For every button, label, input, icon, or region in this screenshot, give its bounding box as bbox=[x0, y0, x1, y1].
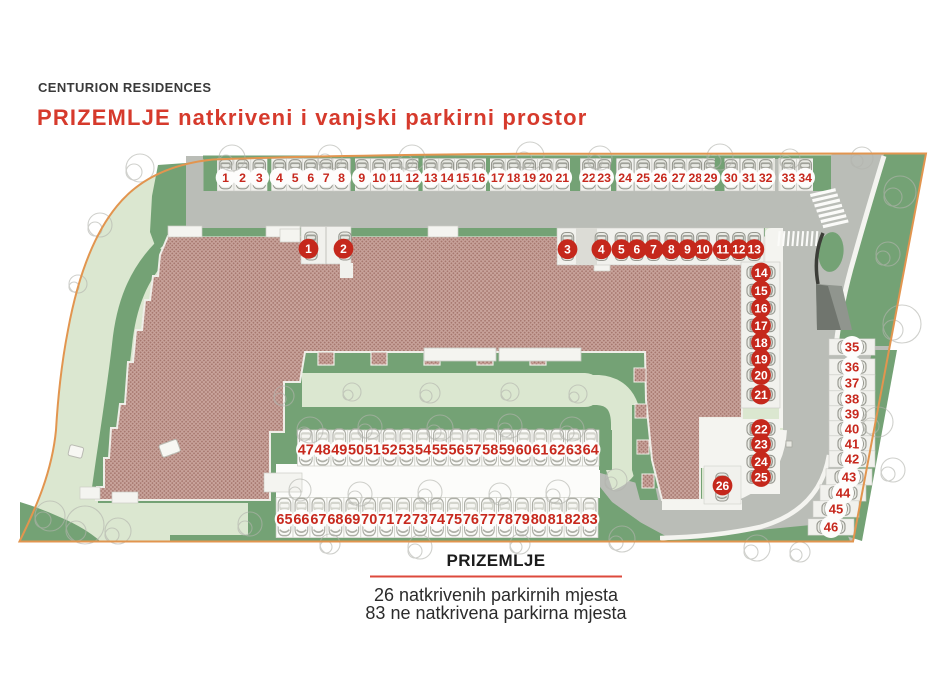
svg-text:17: 17 bbox=[491, 171, 505, 185]
svg-text:19: 19 bbox=[754, 352, 768, 366]
svg-text:46: 46 bbox=[824, 520, 838, 535]
svg-text:4: 4 bbox=[276, 171, 283, 185]
svg-text:2: 2 bbox=[340, 242, 347, 256]
svg-text:20: 20 bbox=[754, 368, 768, 382]
svg-text:74: 74 bbox=[429, 512, 445, 528]
svg-text:2: 2 bbox=[239, 171, 246, 185]
svg-text:81: 81 bbox=[548, 512, 564, 528]
svg-text:50: 50 bbox=[348, 443, 364, 459]
svg-text:10: 10 bbox=[696, 243, 710, 257]
svg-text:25: 25 bbox=[636, 171, 650, 185]
svg-text:64: 64 bbox=[583, 443, 599, 459]
svg-text:15: 15 bbox=[456, 171, 470, 185]
svg-text:6: 6 bbox=[307, 171, 314, 185]
svg-text:22: 22 bbox=[582, 171, 596, 185]
svg-text:13: 13 bbox=[424, 171, 438, 185]
svg-text:12: 12 bbox=[732, 243, 746, 257]
svg-text:29: 29 bbox=[704, 171, 718, 185]
svg-text:67: 67 bbox=[310, 512, 326, 528]
svg-text:11: 11 bbox=[389, 171, 402, 185]
svg-text:28: 28 bbox=[688, 171, 702, 185]
svg-text:4: 4 bbox=[598, 243, 605, 257]
svg-text:3: 3 bbox=[564, 243, 571, 257]
svg-text:83: 83 bbox=[582, 512, 598, 528]
svg-text:3: 3 bbox=[256, 171, 263, 185]
svg-text:8: 8 bbox=[668, 243, 675, 257]
svg-text:63: 63 bbox=[566, 443, 582, 459]
svg-text:CENTURION RESIDENCES: CENTURION RESIDENCES bbox=[38, 80, 211, 95]
svg-text:34: 34 bbox=[798, 171, 812, 185]
svg-text:19: 19 bbox=[522, 171, 536, 185]
svg-text:1: 1 bbox=[305, 242, 312, 256]
svg-text:49: 49 bbox=[331, 443, 347, 459]
svg-text:79: 79 bbox=[514, 512, 530, 528]
svg-text:20: 20 bbox=[539, 171, 553, 185]
svg-text:PRIZEMLJE natkriveni i vanjski: PRIZEMLJE natkriveni i vanjski parkirni … bbox=[37, 105, 587, 130]
svg-text:PRIZEMLJE: PRIZEMLJE bbox=[446, 551, 545, 570]
svg-text:71: 71 bbox=[378, 512, 394, 528]
svg-text:55: 55 bbox=[432, 443, 448, 459]
svg-text:25: 25 bbox=[754, 470, 768, 484]
svg-text:14: 14 bbox=[754, 266, 768, 280]
svg-text:27: 27 bbox=[672, 171, 686, 185]
svg-text:58: 58 bbox=[482, 443, 498, 459]
svg-text:9: 9 bbox=[684, 243, 691, 257]
svg-text:7: 7 bbox=[650, 243, 657, 257]
svg-text:26: 26 bbox=[654, 171, 668, 185]
svg-text:23: 23 bbox=[754, 437, 768, 451]
svg-text:31: 31 bbox=[742, 171, 756, 185]
svg-text:24: 24 bbox=[754, 455, 768, 469]
svg-text:26 natkrivenih parkirnih mjest: 26 natkrivenih parkirnih mjesta bbox=[374, 585, 619, 605]
svg-text:21: 21 bbox=[754, 388, 768, 402]
svg-text:32: 32 bbox=[759, 171, 773, 185]
svg-text:23: 23 bbox=[597, 171, 611, 185]
svg-text:7: 7 bbox=[323, 171, 330, 185]
svg-text:18: 18 bbox=[754, 336, 768, 350]
svg-text:62: 62 bbox=[549, 443, 565, 459]
svg-text:54: 54 bbox=[415, 443, 431, 459]
svg-text:18: 18 bbox=[507, 171, 521, 185]
svg-text:45: 45 bbox=[829, 502, 843, 517]
svg-text:70: 70 bbox=[361, 512, 377, 528]
svg-text:83 ne natkrivena parkirna mjes: 83 ne natkrivena parkirna mjesta bbox=[365, 603, 627, 623]
svg-text:65: 65 bbox=[276, 512, 292, 528]
svg-text:13: 13 bbox=[748, 243, 762, 257]
svg-text:30: 30 bbox=[724, 171, 738, 185]
svg-text:6: 6 bbox=[633, 243, 640, 257]
svg-text:75: 75 bbox=[446, 512, 462, 528]
svg-text:42: 42 bbox=[845, 452, 859, 467]
svg-text:21: 21 bbox=[555, 171, 569, 185]
svg-text:5: 5 bbox=[618, 243, 625, 257]
svg-text:57: 57 bbox=[465, 443, 481, 459]
svg-text:8: 8 bbox=[338, 171, 345, 185]
svg-text:68: 68 bbox=[327, 512, 343, 528]
svg-text:1: 1 bbox=[222, 171, 229, 185]
svg-text:35: 35 bbox=[845, 340, 859, 355]
svg-text:72: 72 bbox=[395, 512, 411, 528]
svg-text:73: 73 bbox=[412, 512, 428, 528]
svg-text:33: 33 bbox=[782, 171, 796, 185]
svg-text:66: 66 bbox=[293, 512, 309, 528]
svg-text:17: 17 bbox=[754, 319, 768, 333]
svg-text:52: 52 bbox=[382, 443, 398, 459]
svg-text:11: 11 bbox=[716, 243, 729, 257]
svg-text:78: 78 bbox=[497, 512, 513, 528]
svg-text:69: 69 bbox=[344, 512, 360, 528]
svg-text:59: 59 bbox=[499, 443, 515, 459]
svg-text:82: 82 bbox=[565, 512, 581, 528]
svg-text:76: 76 bbox=[463, 512, 479, 528]
svg-text:5: 5 bbox=[292, 171, 299, 185]
svg-text:26: 26 bbox=[716, 479, 730, 493]
svg-text:56: 56 bbox=[449, 443, 465, 459]
svg-text:61: 61 bbox=[532, 443, 548, 459]
svg-text:60: 60 bbox=[516, 443, 532, 459]
svg-text:53: 53 bbox=[398, 443, 414, 459]
svg-text:10: 10 bbox=[372, 171, 386, 185]
svg-text:16: 16 bbox=[754, 301, 768, 315]
svg-text:80: 80 bbox=[531, 512, 547, 528]
svg-text:15: 15 bbox=[754, 284, 768, 298]
svg-text:12: 12 bbox=[405, 171, 419, 185]
svg-text:16: 16 bbox=[472, 171, 486, 185]
svg-text:77: 77 bbox=[480, 512, 496, 528]
svg-text:9: 9 bbox=[358, 171, 365, 185]
svg-text:24: 24 bbox=[618, 171, 632, 185]
svg-text:14: 14 bbox=[440, 171, 454, 185]
svg-text:47: 47 bbox=[298, 443, 314, 459]
svg-text:51: 51 bbox=[365, 443, 381, 459]
svg-text:48: 48 bbox=[315, 443, 331, 459]
